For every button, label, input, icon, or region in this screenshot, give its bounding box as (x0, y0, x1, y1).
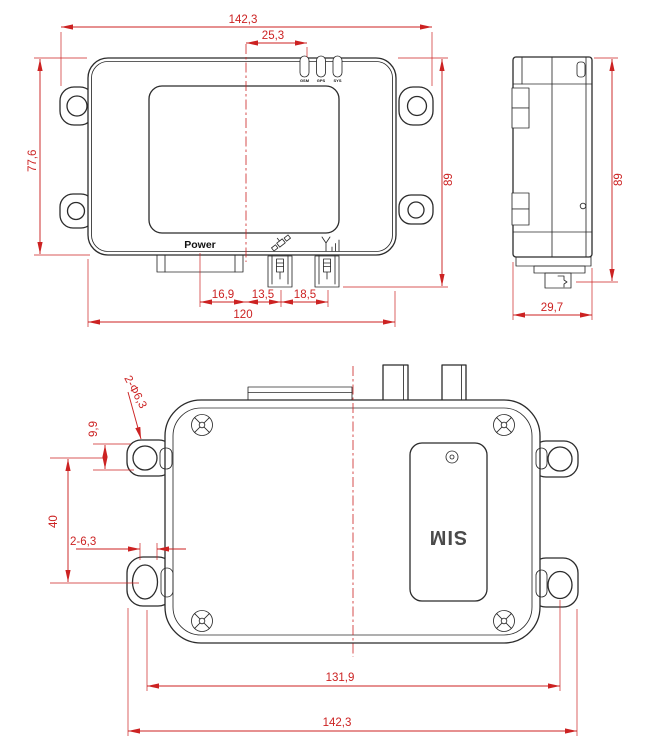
sim-cover: SIM (410, 443, 487, 601)
dim-text: 142,3 (229, 14, 258, 26)
dim-text: 131,9 (326, 672, 355, 684)
dim-text: 120 (233, 309, 252, 321)
dim-text: 40 (48, 515, 60, 528)
dim-text: 2-Φ6,3 (121, 374, 148, 411)
dim-text: 77,6 (27, 150, 39, 172)
side-connector (516, 257, 591, 288)
dim-text: 2-6,3 (70, 536, 96, 548)
side-view: 89 29,7 (512, 57, 625, 320)
dim-text: 13,5 (252, 289, 274, 301)
mounting-tab-edge (512, 209, 529, 225)
bottom-view: SIM 2-Φ6,3 9,9 40 2-6,3 (48, 365, 578, 736)
dim-hole-vertical-spacing: 40 (48, 458, 139, 583)
dim-text: 29,7 (541, 302, 563, 314)
antenna-connector-stub (442, 365, 466, 402)
front-view: GSM GPS SYS Power 142,3 25,3 (27, 14, 455, 327)
mounting-tab-edge (512, 193, 529, 209)
dim-text: 25,3 (262, 30, 284, 42)
dim-text: 89 (613, 173, 625, 186)
dimension-drawing: GSM GPS SYS Power 142,3 25,3 (0, 0, 658, 756)
led-label: GPS (317, 78, 326, 83)
pin-hole (580, 203, 586, 209)
mounting-tab-edge (512, 88, 529, 108)
mounting-tab (399, 195, 433, 224)
led (333, 56, 342, 77)
dim-text: 89 (443, 173, 455, 186)
callout-mounting-holes: 2-Φ6,3 (121, 374, 148, 439)
gsm-antenna-connector (315, 256, 339, 287)
power-connector-edge (248, 387, 352, 401)
dim-body-depth: 29,7 (513, 262, 592, 320)
status-leds: GSM GPS SYS (300, 56, 342, 83)
sim-label: SIM (429, 526, 468, 548)
technical-drawing-page: GSM GPS SYS Power 142,3 25,3 (0, 0, 658, 756)
power-label: Power (184, 239, 216, 251)
led (300, 56, 309, 77)
led-label: SYS (333, 78, 341, 83)
enclosure-outline (513, 57, 592, 257)
antenna-connector-stub (383, 365, 408, 402)
dim-text: 142,3 (323, 717, 352, 729)
led-label: GSM (300, 78, 310, 83)
led (317, 56, 326, 77)
enclosure-outline (88, 58, 396, 255)
dim-text: 18,5 (294, 289, 316, 301)
dim-text: 9,9 (88, 421, 100, 437)
dim-text: 16,9 (212, 289, 234, 301)
gps-antenna-connector (268, 256, 292, 287)
dim-overall-height: 89 (576, 58, 625, 282)
dim-led-offset: 25,3 (246, 30, 307, 57)
slot-opening (577, 62, 585, 77)
mounting-tab-edge (512, 108, 529, 128)
mounting-tab (399, 87, 433, 125)
